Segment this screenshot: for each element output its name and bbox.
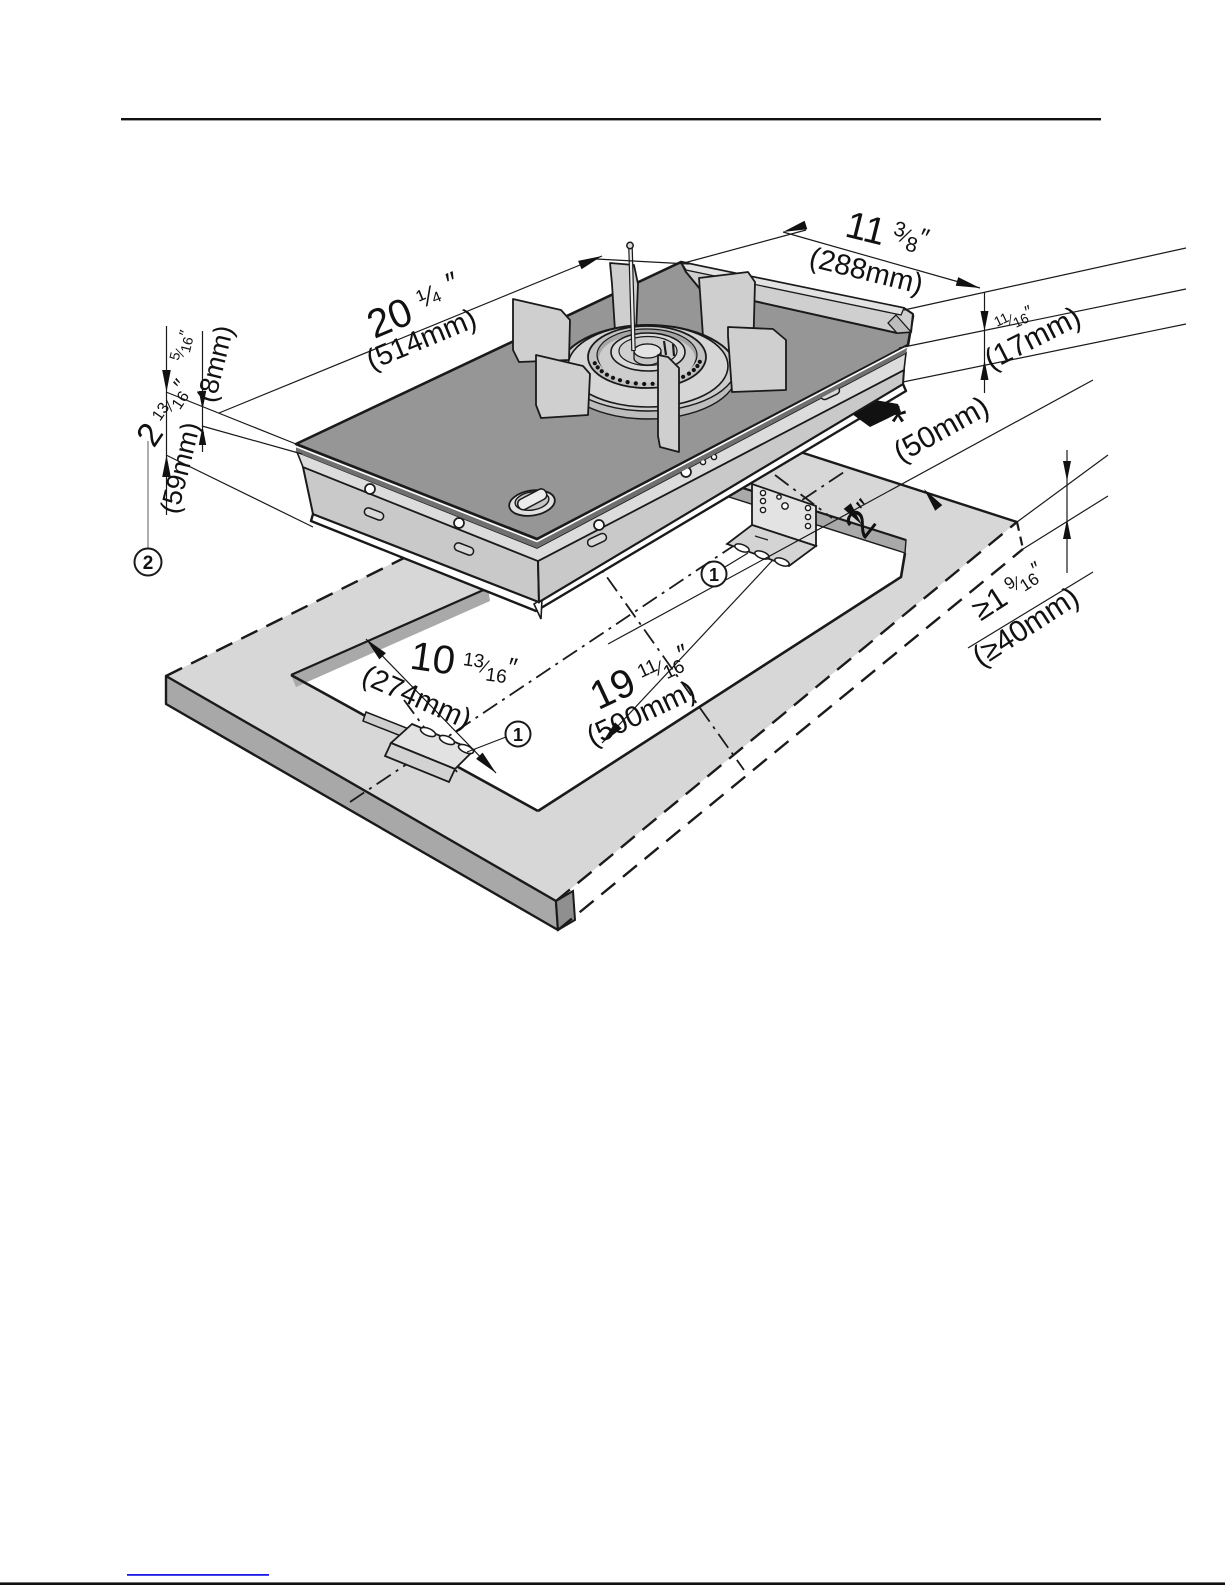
- svg-text:1: 1: [513, 725, 523, 745]
- svg-text:2: 2: [143, 553, 154, 574]
- svg-text:1: 1: [709, 565, 719, 585]
